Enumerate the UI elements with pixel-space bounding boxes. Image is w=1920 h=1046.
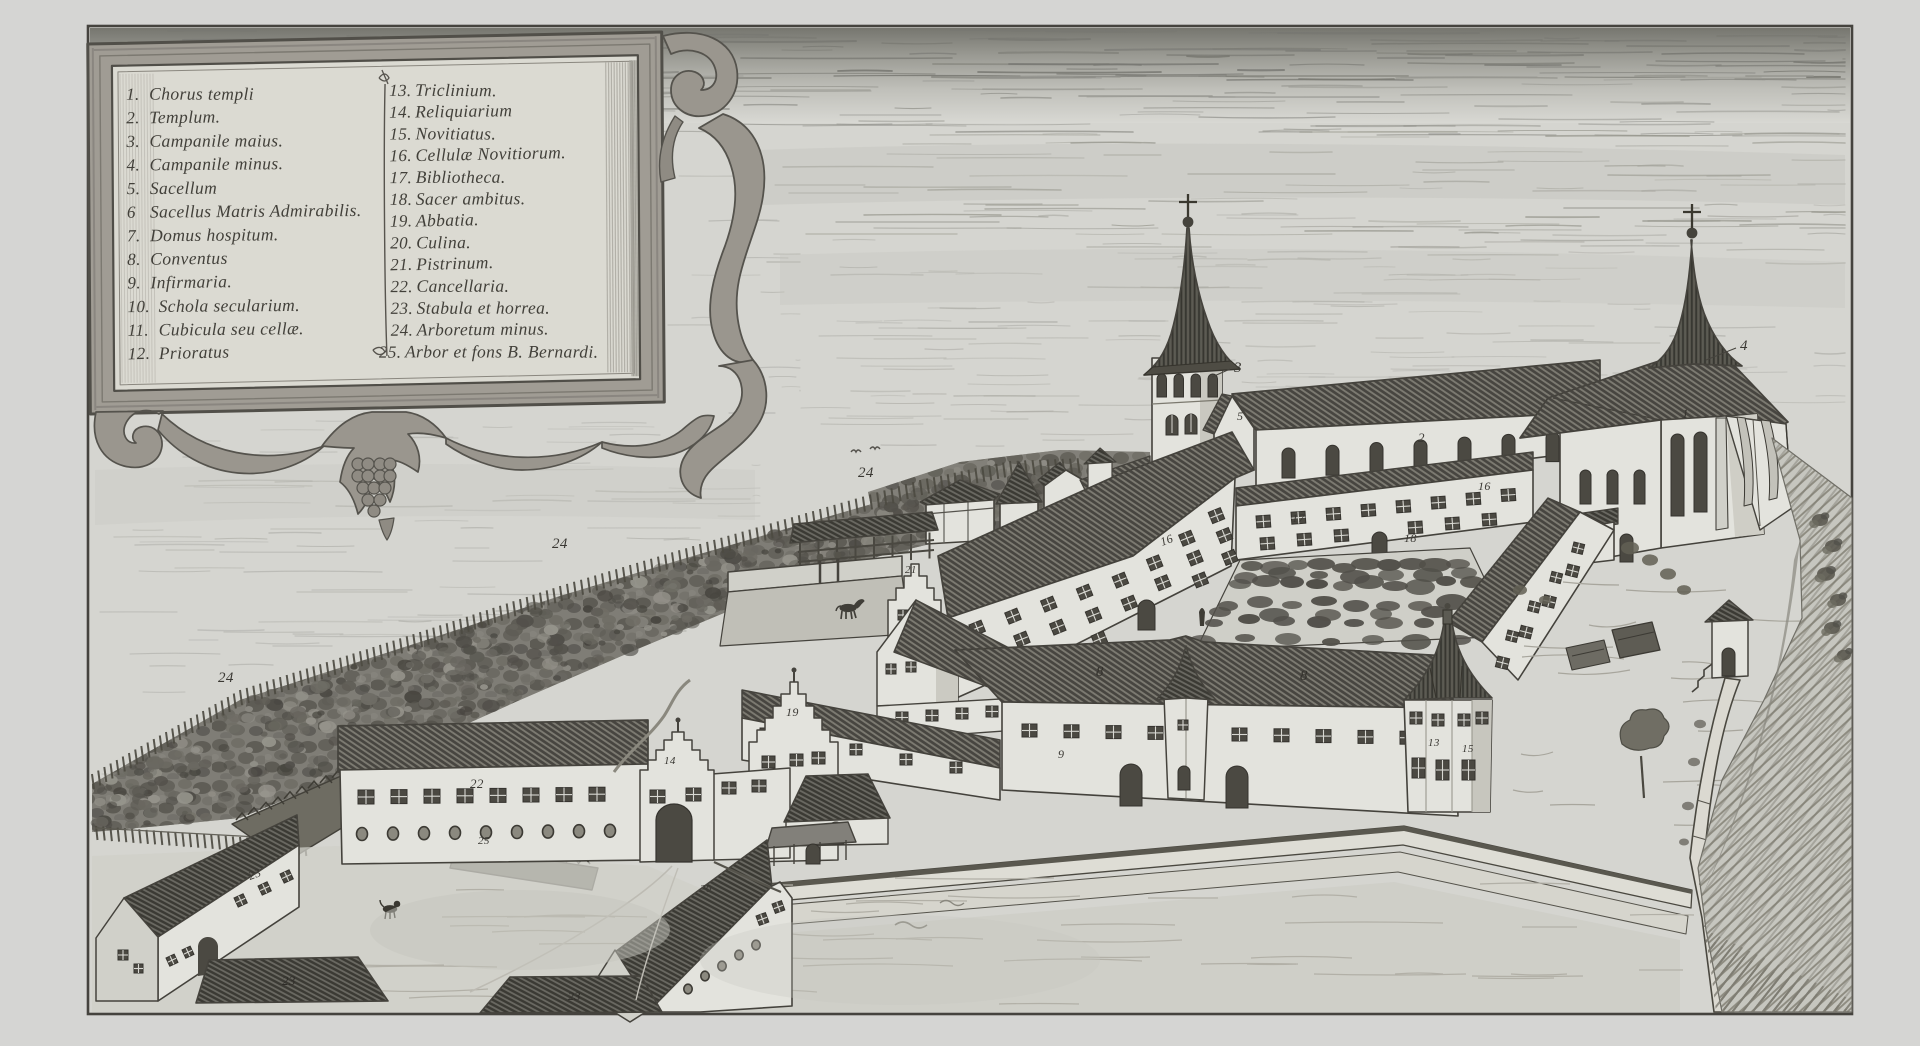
svg-text:8: 8 (1300, 668, 1308, 684)
svg-text:21: 21 (905, 564, 917, 576)
svg-text:14: 14 (664, 755, 676, 767)
svg-text:8.: 8. (127, 250, 141, 269)
svg-text:2.: 2. (126, 108, 140, 127)
svg-text:21.: 21. (390, 255, 413, 275)
svg-text:Novitiatus.: Novitiatus. (414, 123, 496, 143)
svg-text:11.: 11. (128, 321, 149, 340)
svg-text:Prioratus: Prioratus (158, 341, 230, 363)
svg-text:Cellulæ Novitiorum.: Cellulæ Novitiorum. (415, 142, 566, 165)
svg-text:18: 18 (1404, 531, 1417, 545)
svg-text:14.: 14. (389, 102, 412, 121)
svg-text:Stabula et horrea.: Stabula et horrea. (417, 298, 550, 318)
svg-text:13: 13 (1428, 737, 1440, 749)
svg-text:Campanile minus.: Campanile minus. (149, 153, 283, 174)
svg-text:Pistrinum.: Pistrinum. (415, 252, 494, 274)
svg-text:2: 2 (1418, 430, 1425, 445)
svg-text:9: 9 (1058, 747, 1064, 761)
svg-text:3: 3 (1233, 360, 1242, 376)
svg-text:22.: 22. (390, 277, 413, 296)
svg-text:Sacellus Matris Admirabilis.: Sacellus Matris Admirabilis. (150, 200, 362, 222)
svg-text:Conventus: Conventus (150, 248, 228, 269)
svg-text:Schola secularium.: Schola secularium. (159, 295, 300, 316)
svg-text:19: 19 (786, 705, 799, 719)
svg-text:Arbor et fons B. Bernardi.: Arbor et fons B. Bernardi. (404, 341, 599, 361)
svg-text:19.: 19. (390, 211, 413, 230)
svg-text:Reliquiarium: Reliquiarium (414, 100, 512, 121)
svg-text:17.: 17. (390, 168, 412, 187)
svg-text:24.: 24. (391, 321, 414, 340)
svg-text:1: 1 (1682, 406, 1689, 421)
svg-text:Infirmaria.: Infirmaria. (149, 271, 232, 292)
svg-text:Sacer ambitus.: Sacer ambitus. (416, 188, 526, 209)
svg-text:9.: 9. (127, 273, 141, 292)
svg-text:4: 4 (1740, 338, 1748, 354)
svg-text:23: 23 (568, 989, 581, 1003)
svg-text:24: 24 (552, 536, 568, 552)
svg-text:Sacellum: Sacellum (150, 178, 217, 198)
svg-text:16: 16 (1478, 479, 1491, 493)
svg-text:4.: 4. (127, 155, 141, 174)
svg-text:Arboretum minus.: Arboretum minus. (416, 318, 549, 339)
svg-text:25: 25 (478, 835, 490, 847)
svg-text:13.: 13. (389, 81, 412, 100)
svg-text:8: 8 (1096, 664, 1104, 680)
svg-text:16.: 16. (389, 146, 412, 165)
svg-text:22: 22 (470, 776, 484, 791)
svg-text:5.: 5. (127, 179, 141, 198)
svg-text:Templum.: Templum. (149, 106, 220, 127)
svg-text:23.: 23. (391, 299, 413, 318)
svg-text:24: 24 (858, 465, 874, 481)
svg-text:20.: 20. (390, 233, 413, 252)
svg-text:12.: 12. (128, 344, 151, 364)
svg-text:24: 24 (218, 670, 234, 686)
svg-text:6: 6 (127, 203, 136, 222)
svg-text:Abbatia.: Abbatia. (415, 209, 479, 230)
svg-text:1.: 1. (126, 85, 140, 104)
svg-text:Culina.: Culina. (416, 232, 471, 252)
svg-text:25.: 25. (379, 343, 401, 362)
svg-text:Triclinium.: Triclinium. (415, 80, 497, 101)
svg-text:23: 23 (282, 973, 296, 988)
svg-text:Cancellaria.: Cancellaria. (416, 276, 509, 296)
svg-text:15: 15 (1462, 743, 1474, 755)
svg-text:Chorus templi: Chorus templi (149, 84, 254, 104)
svg-text:15.: 15. (389, 125, 412, 144)
svg-text:17: 17 (1292, 511, 1305, 525)
svg-text:Cubicula seu cellæ.: Cubicula seu cellæ. (159, 318, 304, 339)
svg-text:Domus hospitum.: Domus hospitum. (149, 224, 279, 245)
svg-text:3.: 3. (125, 132, 140, 151)
svg-text:18.: 18. (390, 190, 413, 209)
svg-text:10.: 10. (128, 297, 151, 316)
svg-text:7.: 7. (127, 226, 141, 245)
svg-text:Bibliotheca.: Bibliotheca. (416, 167, 506, 187)
svg-text:20: 20 (700, 883, 712, 895)
svg-text:Campanile maius.: Campanile maius. (149, 130, 283, 150)
